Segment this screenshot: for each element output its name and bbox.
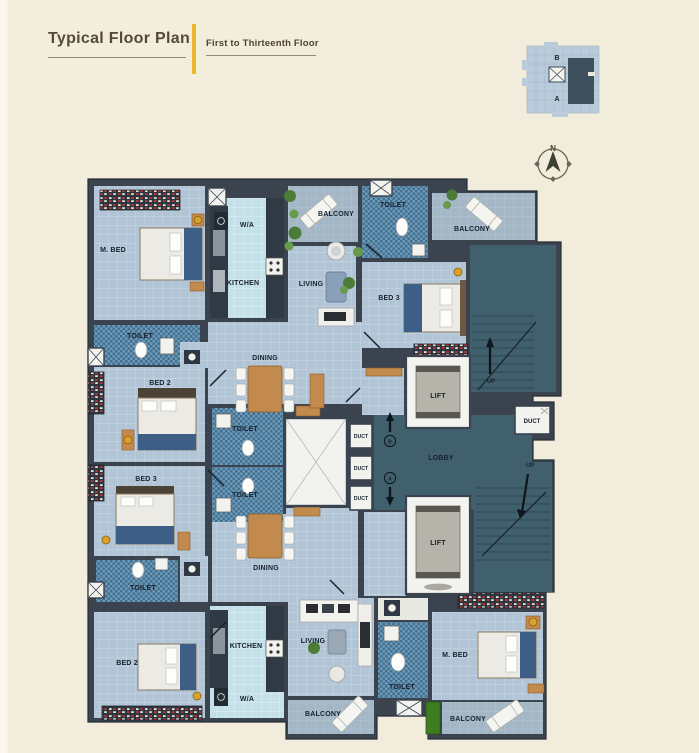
washing-machine-icon	[214, 212, 228, 230]
dining-set-bottom	[236, 514, 294, 560]
label-m-bed-top: M. BED	[100, 247, 126, 254]
label-toilet-center-lower: TOILET	[232, 492, 258, 499]
label-duct-3: DUCT	[354, 496, 369, 502]
label-balcony-top-left: BALCONY	[318, 211, 354, 218]
label-wa-top: W/A	[240, 222, 254, 229]
label-lift-upper: LIFT	[430, 393, 446, 400]
label-toilet-center-upper: TOILET	[232, 426, 258, 433]
label-toilet-left-lower: TOILET	[130, 585, 156, 592]
label-marker-a: A	[388, 477, 392, 483]
label-toilet-mid-left: TOILET	[127, 333, 153, 340]
label-dining-bottom: DINING	[253, 565, 279, 572]
label-bed2-top: BED 2	[149, 380, 171, 387]
green-mat	[426, 702, 440, 734]
label-balcony-top-right: BALCONY	[454, 226, 490, 233]
label-up-top-right: UP	[487, 379, 495, 385]
dining-set-top	[236, 366, 294, 412]
label-living-top: LIVING	[299, 281, 324, 288]
label-kitchen-bottom: KITCHEN	[230, 643, 263, 650]
key-plan-core	[568, 58, 594, 104]
label-toilet-top: TOILET	[380, 202, 406, 209]
washing-machine-icon	[214, 688, 228, 706]
label-duct-right: DUCT	[524, 419, 541, 425]
label-duct-1: DUCT	[354, 434, 369, 440]
stove-icon	[266, 640, 283, 657]
label-living-bottom: LIVING	[301, 638, 326, 645]
label-wa-bottom: W/A	[240, 696, 254, 703]
label-duct-2: DUCT	[354, 466, 369, 472]
label-bed3-top: BED 3	[378, 295, 400, 302]
label-kitchen-top: KITCHEN	[227, 280, 260, 287]
floor-plan: M. BED W/A KITCHEN BALCONY TOILET BALCON…	[88, 179, 561, 739]
key-plan: B A	[522, 42, 599, 117]
label-balcony-bottom-right: BALCONY	[450, 716, 486, 723]
lift-upper	[406, 356, 470, 428]
label-balcony-bottom-mid: BALCONY	[305, 711, 341, 718]
key-plan-wing-a: A	[554, 96, 559, 103]
label-up-bottom-right: UP	[526, 463, 534, 469]
label-dining-top: DINING	[252, 355, 278, 362]
label-lift-lower: LIFT	[430, 540, 446, 547]
hall-bench	[310, 374, 324, 408]
north-compass-icon: N	[534, 144, 572, 182]
compass-north-label: N	[550, 144, 556, 153]
label-lobby: LOBBY	[428, 455, 454, 462]
key-plan-wing-b: B	[554, 55, 559, 62]
label-toilet-bottom-mid: TOILET	[389, 684, 415, 691]
label-bed2-bottom: BED 2	[116, 660, 138, 667]
floor-plan-canvas: B A N	[0, 0, 699, 753]
label-m-bed-bottom: M. BED	[442, 652, 468, 659]
stove-icon	[266, 258, 283, 275]
label-marker-b: B	[388, 440, 392, 446]
hall-shelf	[366, 368, 402, 376]
label-bed3-left: BED 3	[135, 476, 157, 483]
